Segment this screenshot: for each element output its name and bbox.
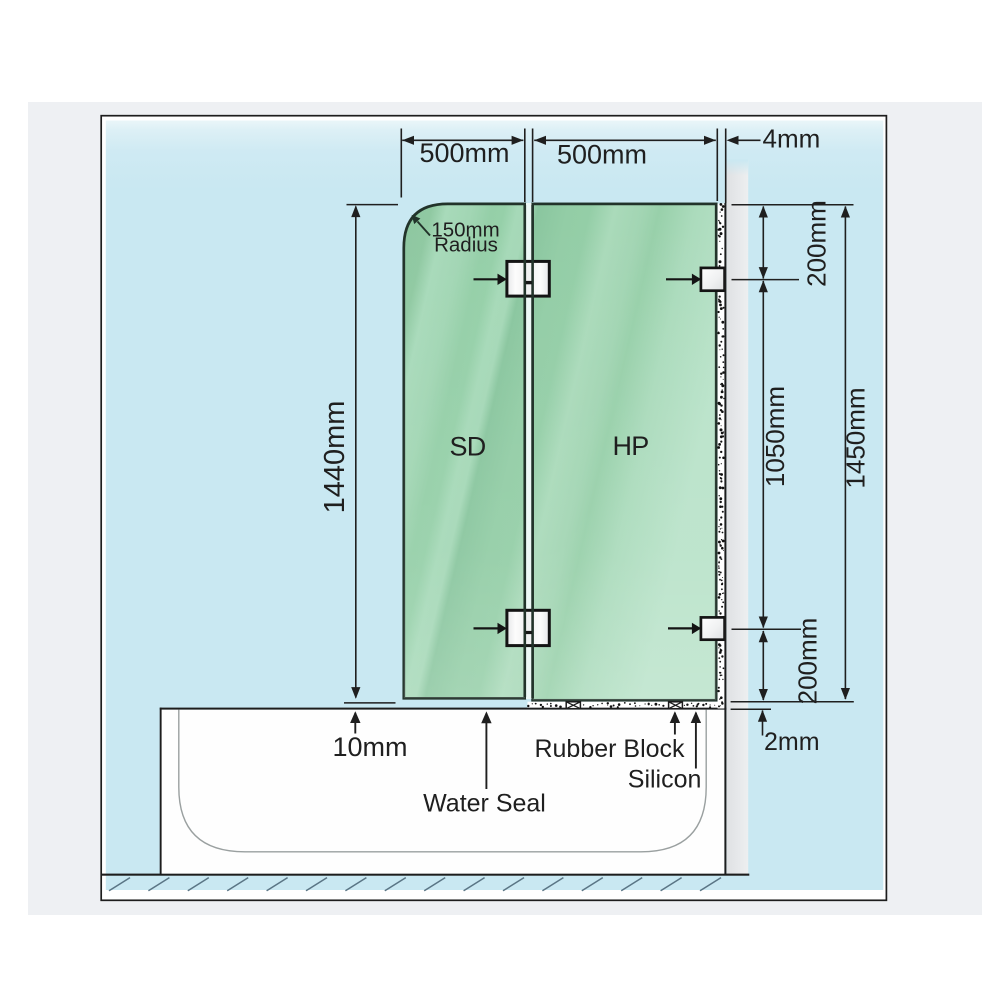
svg-text:Silicon: Silicon (628, 766, 702, 794)
svg-text:HP: HP (613, 431, 649, 461)
svg-text:1050mm: 1050mm (760, 386, 790, 487)
svg-text:500mm: 500mm (419, 138, 509, 168)
svg-text:4mm: 4mm (763, 124, 821, 154)
svg-text:Radius: Radius (434, 234, 498, 257)
svg-text:SD: SD (450, 432, 486, 462)
svg-text:Rubber Block: Rubber Block (534, 735, 685, 763)
svg-text:1440mm: 1440mm (319, 401, 351, 514)
svg-text:500mm: 500mm (557, 140, 647, 170)
svg-text:200mm: 200mm (793, 618, 823, 705)
svg-text:10mm: 10mm (332, 732, 407, 762)
svg-text:Water Seal: Water Seal (423, 790, 546, 818)
svg-text:1450mm: 1450mm (841, 387, 871, 488)
svg-text:2mm: 2mm (764, 728, 820, 756)
svg-text:200mm: 200mm (802, 200, 832, 287)
